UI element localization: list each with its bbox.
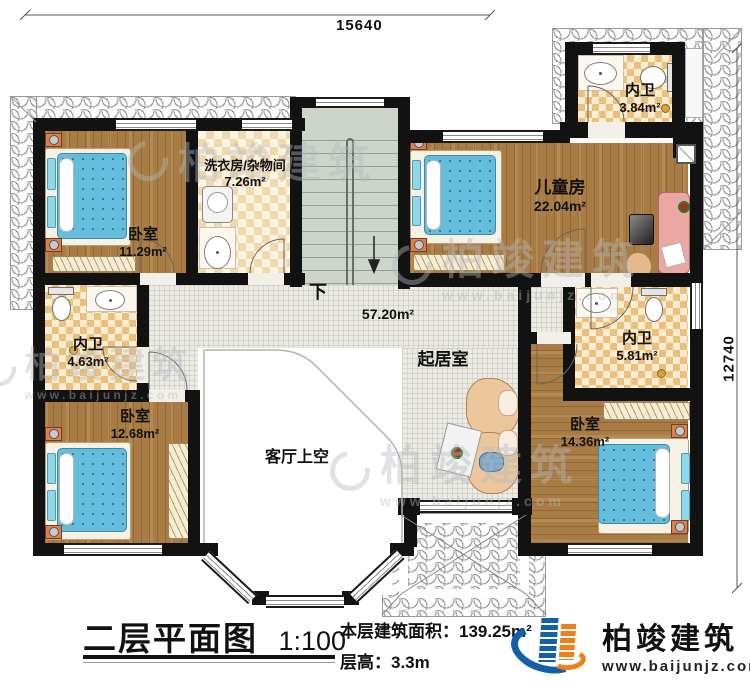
dimension-top: 15640 [336,17,383,34]
wall-stair-right [398,97,410,289]
headboard-cushion [412,160,421,190]
void-over-living-area [202,348,402,545]
door-opening [588,122,625,138]
toilet-bowl [52,296,71,321]
headboard-cushion [681,490,690,521]
bay-window-bottom [266,595,344,608]
bed-pillow [59,453,74,525]
nightstand [671,520,688,534]
brand-url: www.baijunjz.com [602,658,750,675]
room-label-kids-room: 儿童房 22.04m² [505,178,615,215]
dimension-right: 12740 [721,324,738,394]
window [116,118,196,131]
window [690,283,703,329]
bath-sink [95,290,125,310]
door-opening [149,390,185,402]
scale-text: 1:100 [278,626,346,656]
bath-top-shaft [685,48,703,118]
headboard-cushion [412,196,421,226]
door-opening [537,332,571,344]
roof-right-strip [703,28,742,250]
nightstand [45,427,62,441]
toilet-tank [48,287,74,295]
bed-pillow [426,160,441,230]
drawing-title: 二层平面图 1:100 [83,612,346,660]
room-label-bath-right: 内卫 5.81m² [597,330,677,364]
nightstand [45,238,62,252]
roof-porch-inner-ring [399,514,529,598]
floor-plan-canvas: 卧室 11.29m² 洗衣房/杂物间 7.26m² 儿童房 22.04m² 内卫… [0,0,750,684]
wall-bedroom3-left [518,287,531,556]
wall-bedroom2-right [188,390,200,556]
window [443,130,543,143]
wall-bath-top-left [565,42,578,135]
floor-height-line: 层高：3.3m [340,648,430,673]
brand-block: 柏竣建筑 www.baijunjz.com [510,614,750,675]
room-label-bath-left: 内卫 4.63m² [48,336,128,370]
computer-monitor [629,214,654,245]
table-flowers [450,446,464,460]
wall-left-outer [33,118,45,556]
nightstand [45,133,62,147]
door-opening [140,273,176,285]
bath-sink [582,293,611,313]
wall-right-outer [690,156,703,556]
headboard-cushion [47,453,56,484]
bed-pillow [655,448,670,518]
floor-area-line: 本层建筑面积：139.25m² [340,617,532,642]
headboard-cushion [47,158,56,190]
window [420,500,512,513]
duct-niche [676,144,696,164]
room-label-laundry: 洗衣房/杂物间 7.26m² [193,158,297,189]
floor-drain [657,369,666,378]
floor-corridor-left [149,285,198,390]
floor-corridor-pocket [531,287,563,332]
floor-height-label: 层高： [340,653,391,672]
title-text: 二层平面图 [83,620,258,657]
room-label-bedroom-bottom-right: 卧室 14.36m² [537,416,633,450]
nightstand [410,238,427,252]
room-label-living: 起居室 [408,350,478,370]
brand-logo-icon [510,616,594,674]
window [316,97,384,108]
sofa-cushion [498,390,518,416]
nightstand [45,525,62,539]
floor-area-label: 本层建筑面积： [340,622,459,641]
watermark-logo-icon [0,345,23,392]
stair-rail [346,138,354,285]
nightstand [671,424,688,438]
desk-plant [677,200,691,214]
washer-drum [207,192,228,213]
wall-bath-right-bottom [563,388,701,401]
room-label-void: 客厅上空 [257,448,337,467]
title-underline-thin [83,662,335,663]
window [568,543,652,556]
door-opening [248,273,284,285]
headboard-cushion [681,453,690,484]
headboard-cushion [47,196,56,228]
laundry-sink [204,236,231,269]
sofa-cushion [498,430,518,456]
bed-pillow [59,158,74,232]
window [593,42,650,55]
room-label-bedroom-bottom-left: 卧室 12.68m² [87,408,183,442]
title-underline [83,655,335,659]
person-figure [479,452,504,472]
toilet-bowl [645,297,663,322]
room-label-bath-top: 内卫 3.84m² [600,82,680,116]
door-opening [137,347,149,383]
door-opening [541,273,585,287]
wardrobe [413,254,505,271]
room-area-living: 57.20m² [348,306,428,323]
wall-corridor-corner-left [398,498,420,515]
door-opening [591,273,631,287]
stairs-down-label: 下 [309,278,327,304]
toilet-tank [641,288,667,296]
brand-name: 柏竣建筑 [602,614,750,658]
window [64,543,162,556]
wardrobe [168,443,189,539]
headboard-cushion [47,490,56,521]
room-label-bedroom-top-left: 卧室 11.29m² [95,226,191,260]
window [242,118,292,131]
floor-height-value: 3.3m [391,653,430,672]
wall-corridor-corner-right [512,498,532,515]
wall-bath-right-left [563,287,575,401]
